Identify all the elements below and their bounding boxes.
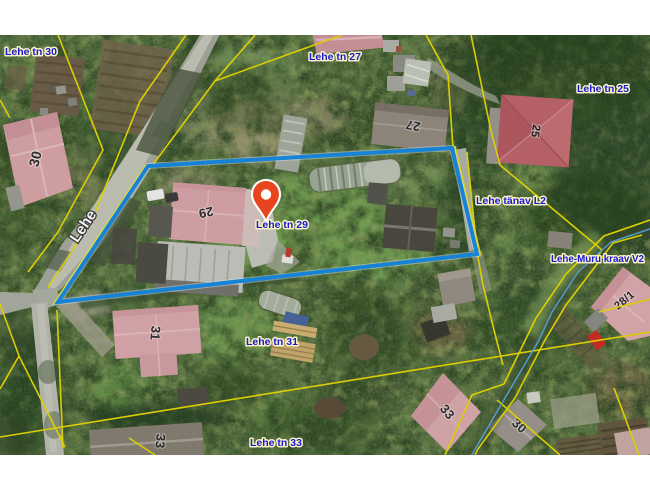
svg-text:Lehe tn 25: Lehe tn 25: [577, 83, 629, 95]
svg-text:Lehe tn 33: Lehe tn 33: [250, 437, 302, 449]
svg-text:Lehe tn 31: Lehe tn 31: [246, 336, 298, 348]
svg-text:Lehe-Muru kraav V2: Lehe-Muru kraav V2: [551, 253, 644, 265]
svg-text:Lehe tn 29: Lehe tn 29: [256, 219, 308, 231]
svg-text:Lehe tänav L2: Lehe tänav L2: [476, 195, 546, 207]
svg-text:Lehe tn 27: Lehe tn 27: [309, 51, 361, 63]
svg-text:Lehe tn 30: Lehe tn 30: [5, 46, 57, 58]
